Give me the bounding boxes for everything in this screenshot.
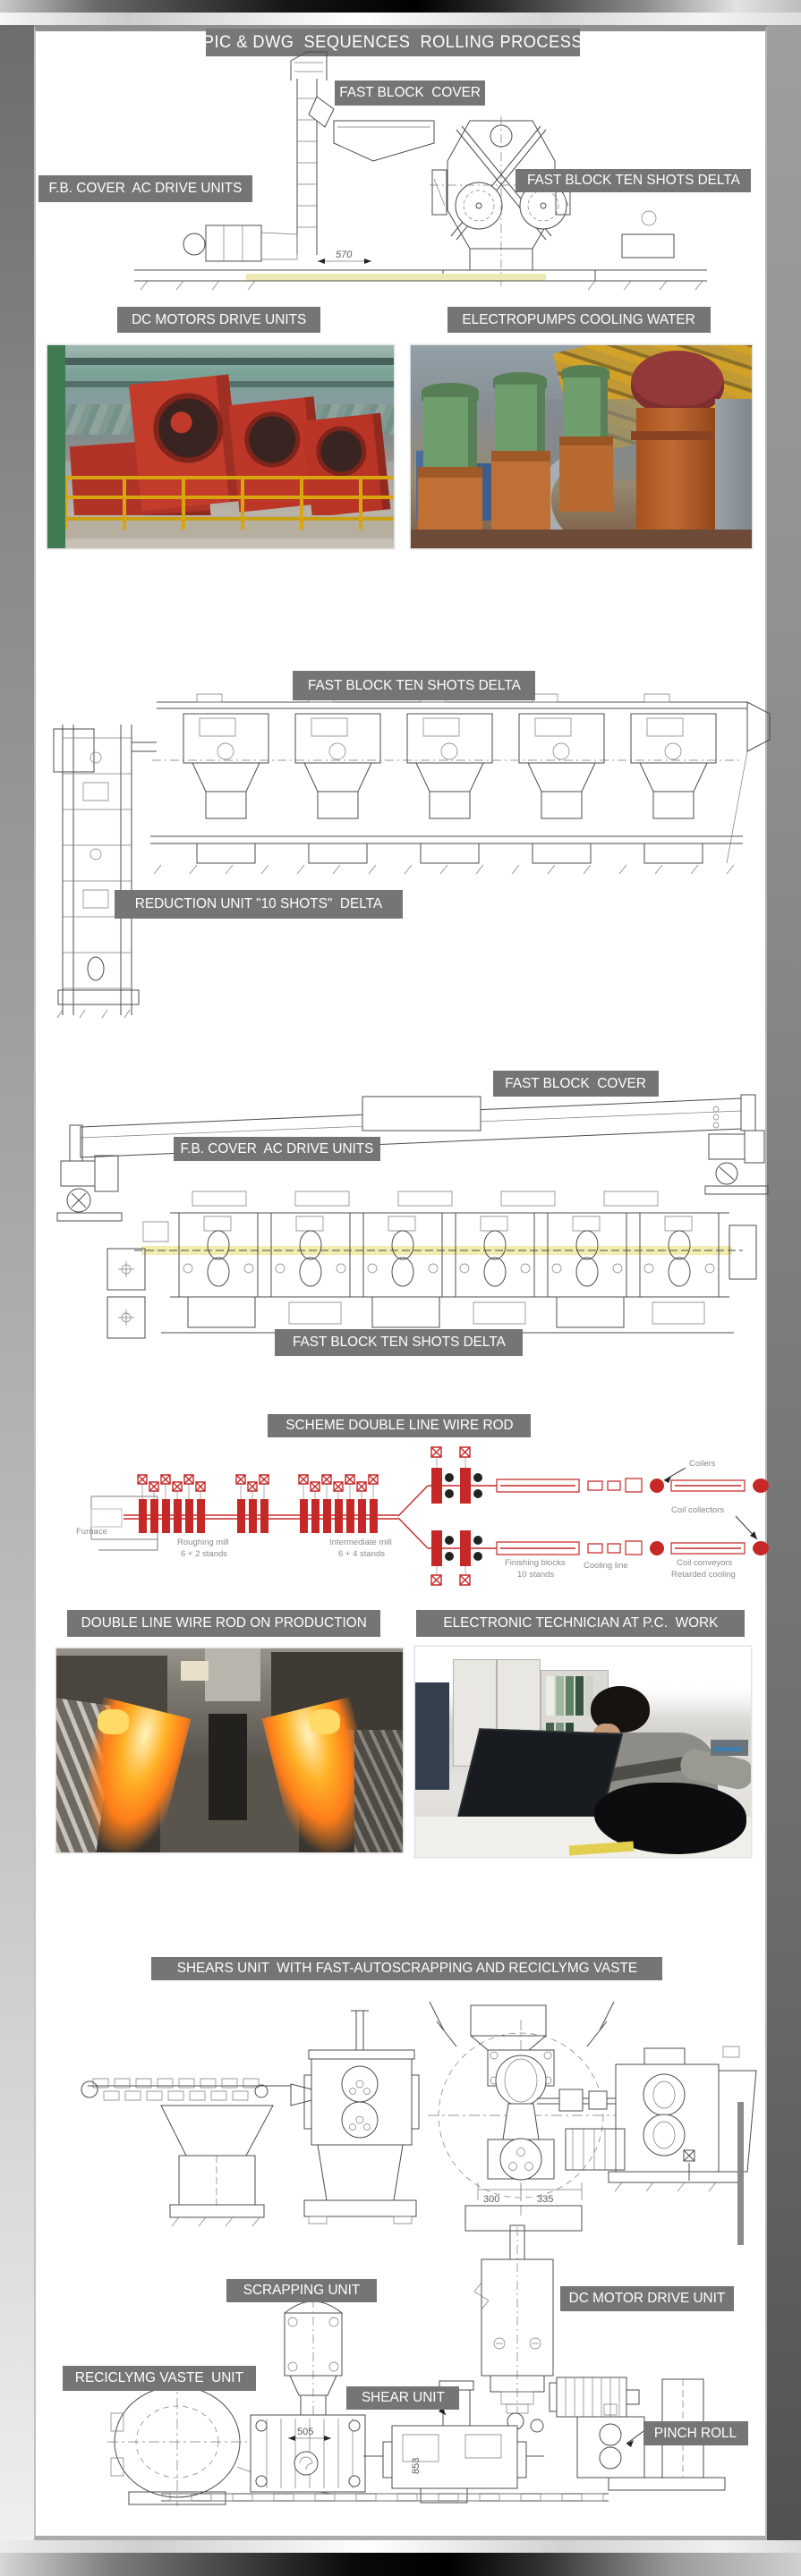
dimension-570: 570 bbox=[336, 250, 353, 260]
label-dc-motors-drive-units: DC MOTORS DRIVE UNITS bbox=[117, 307, 320, 333]
pump-pedestal bbox=[559, 436, 613, 512]
railing-bar bbox=[47, 476, 394, 479]
poster-page: PIC & DWG SEQUENCES ROLLING PROCESS bbox=[0, 0, 801, 2576]
annotation-intermediate-mill: Intermediate mill bbox=[329, 1538, 392, 1547]
blue-tool bbox=[713, 1747, 742, 1751]
pump-pedestal bbox=[491, 451, 550, 533]
girder bbox=[47, 358, 394, 365]
frame-bottom-silver-band bbox=[0, 2540, 801, 2553]
schematic-double-line-wire-rod: Furnace bbox=[45, 1445, 770, 1588]
frame-right-band bbox=[767, 25, 801, 2540]
intermediate-mill-stands bbox=[299, 1475, 378, 1533]
binder bbox=[556, 1676, 564, 1716]
label-dc-motor-drive-unit: DC MOTOR DRIVE UNIT bbox=[560, 2286, 734, 2311]
upper-line bbox=[428, 1447, 769, 1504]
label-fb-cover-ac-drive-units-2: F.B. COVER AC DRIVE UNITS bbox=[174, 1137, 380, 1161]
railing-post bbox=[123, 476, 126, 530]
photo-electronic-technician bbox=[414, 1646, 752, 1858]
white-hot-core bbox=[98, 1709, 129, 1733]
annotation-coilers: Coilers bbox=[689, 1459, 716, 1469]
dc-motor-3 bbox=[303, 413, 391, 518]
railing-bar bbox=[47, 496, 394, 499]
label-fast-block-cover-2: FAST BLOCK COVER bbox=[493, 1071, 659, 1097]
white-hot-core bbox=[310, 1709, 341, 1733]
vessel-dome bbox=[631, 351, 724, 415]
dc-motor-1 bbox=[129, 375, 242, 512]
label-electronic-technician: ELECTRONIC TECHNICIAN AT P.C. WORK bbox=[416, 1610, 745, 1637]
label-scheme-double-line-wire-rod: SCHEME DOUBLE LINE WIRE ROD bbox=[268, 1414, 531, 1437]
frame-top-dark-band bbox=[0, 0, 801, 13]
label-fast-block-ten-shots-delta-1: FAST BLOCK TEN SHOTS DELTA bbox=[516, 169, 751, 192]
annotation-roughing-mill: Roughing mill bbox=[177, 1538, 229, 1547]
blue-panel bbox=[415, 1682, 449, 1790]
annotation-finishing-blocks: Finishing blocks bbox=[505, 1558, 566, 1568]
annotation-retarded-cooling: Retarded cooling bbox=[671, 1570, 736, 1580]
annotation-furnace: Furnace bbox=[76, 1527, 107, 1537]
photo-dc-motors-drive-units bbox=[47, 344, 395, 549]
annotation-intermediate-stands: 6 + 4 stands bbox=[338, 1549, 385, 1559]
label-fast-block-cover-1: FAST BLOCK COVER bbox=[335, 80, 485, 106]
vessel-flange bbox=[631, 431, 724, 440]
drawing-fast-block-cover-plan bbox=[36, 1038, 770, 1368]
railing-post bbox=[241, 476, 244, 530]
annotation-finishing-stands: 10 stands bbox=[517, 1570, 554, 1580]
motor-fan bbox=[314, 424, 370, 479]
label-reduction-unit: REDUCTION UNIT "10 SHOTS" DELTA bbox=[115, 890, 403, 919]
drawing-fast-block-ten-shots-side bbox=[36, 568, 770, 1033]
pump-motor bbox=[563, 377, 608, 436]
frame-top-silver-band bbox=[0, 13, 801, 25]
floor bbox=[411, 530, 752, 548]
dimension-853: 853 bbox=[411, 2458, 422, 2474]
railing-post bbox=[300, 476, 303, 530]
bright-bay bbox=[205, 1648, 260, 1701]
photo-double-line-wire-rod bbox=[55, 1648, 404, 1853]
roughing-mill-stands bbox=[138, 1475, 205, 1533]
roller-guides bbox=[354, 1730, 403, 1852]
dimension-335: 335 bbox=[537, 2194, 553, 2205]
railing-bar bbox=[47, 517, 394, 521]
pump-motor bbox=[423, 397, 477, 467]
motor-fan bbox=[242, 409, 303, 470]
railing-post bbox=[182, 476, 185, 530]
binder bbox=[566, 1676, 574, 1716]
railing-post bbox=[359, 476, 362, 530]
vessel-body bbox=[636, 408, 719, 548]
binder bbox=[546, 1676, 554, 1716]
annotation-coil-conveyors: Coil conveyors bbox=[677, 1558, 733, 1568]
label-double-line-wire-rod-on-production: DOUBLE LINE WIRE ROD ON PRODUCTION bbox=[67, 1610, 380, 1637]
right-pipes bbox=[715, 399, 752, 548]
green-column bbox=[47, 345, 65, 548]
annotation-coil-collectors: Coil collectors bbox=[671, 1505, 724, 1515]
annotation-cooling-line: Cooling line bbox=[584, 1561, 628, 1571]
frame-bottom-dark-band bbox=[0, 2553, 801, 2576]
label-electropumps-cooling-water: ELECTROPUMPS COOLING WATER bbox=[447, 307, 711, 333]
photo-electropumps-cooling-water bbox=[410, 344, 753, 549]
label-fb-cover-ac-drive-units-1: F.B. COVER AC DRIVE UNITS bbox=[38, 175, 252, 202]
label-fast-block-ten-shots-delta-2: FAST BLOCK TEN SHOTS DELTA bbox=[293, 671, 535, 700]
drawing-fast-block-cross-section: 570 bbox=[49, 27, 774, 304]
binder bbox=[575, 1676, 584, 1716]
frame-left-band bbox=[0, 25, 34, 2540]
label-shear-unit: SHEAR UNIT bbox=[346, 2386, 459, 2410]
dimension-300: 300 bbox=[483, 2194, 499, 2205]
annotation-roughing-stands: 6 + 2 stands bbox=[181, 1549, 227, 1559]
label-reciclymg-vaste-unit: RECICLYMG VASTE UNIT bbox=[63, 2366, 256, 2391]
label-pinch-roll: PINCH ROLL bbox=[643, 2421, 748, 2445]
dimension-505: 505 bbox=[297, 2427, 313, 2437]
label-shears-unit: SHEARS UNIT WITH FAST-AUTOSCRAPPING AND … bbox=[151, 1957, 662, 1980]
pump-motor bbox=[495, 385, 545, 451]
pre-intermediate-stands bbox=[236, 1475, 268, 1533]
light bbox=[181, 1661, 209, 1682]
label-fast-block-ten-shots-delta-3: FAST BLOCK TEN SHOTS DELTA bbox=[275, 1329, 523, 1356]
label-scrapping-unit: SCRAPPING UNIT bbox=[226, 2279, 377, 2302]
center-pillar bbox=[209, 1714, 247, 1820]
